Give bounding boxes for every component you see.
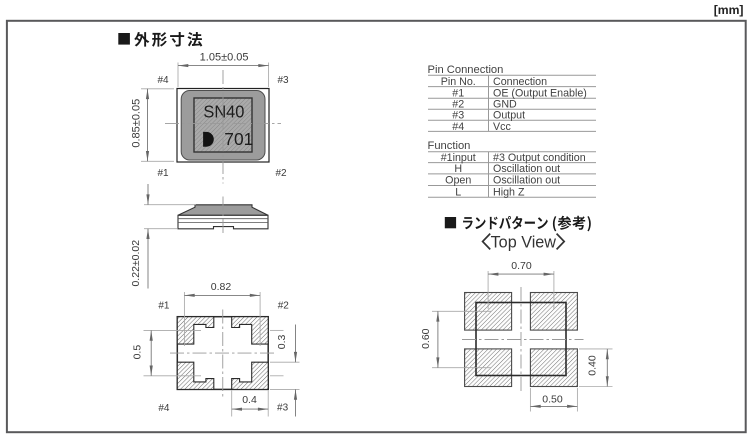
svg-text:H: H bbox=[454, 163, 462, 175]
svg-text:#1: #1 bbox=[452, 87, 464, 99]
svg-text:#2: #2 bbox=[278, 301, 290, 312]
svg-text:#1: #1 bbox=[157, 168, 169, 179]
svg-text:#2: #2 bbox=[275, 168, 287, 179]
svg-text:0.3: 0.3 bbox=[276, 334, 288, 349]
svg-text:Connection: Connection bbox=[493, 76, 547, 88]
svg-text:0.85±0.05: 0.85±0.05 bbox=[130, 99, 142, 148]
svg-text:#3: #3 bbox=[277, 403, 289, 414]
svg-text:#4: #4 bbox=[452, 121, 464, 133]
svg-text:Oscillation out: Oscillation out bbox=[493, 163, 560, 175]
svg-text:[mm]: [mm] bbox=[714, 3, 744, 17]
svg-text:Vcc: Vcc bbox=[493, 121, 511, 133]
svg-text:0.50: 0.50 bbox=[542, 393, 563, 405]
svg-text:0.4: 0.4 bbox=[242, 394, 257, 406]
svg-text:#4: #4 bbox=[158, 403, 170, 414]
svg-text:Pin No.: Pin No. bbox=[441, 76, 476, 88]
svg-text:0.40: 0.40 bbox=[587, 355, 599, 376]
svg-text:L: L bbox=[455, 186, 461, 198]
svg-text:0.60: 0.60 bbox=[420, 328, 432, 349]
svg-text:Open: Open bbox=[445, 175, 471, 187]
svg-text:Top View: Top View bbox=[491, 234, 557, 252]
svg-text:0.70: 0.70 bbox=[511, 260, 532, 272]
svg-text:0.5: 0.5 bbox=[131, 345, 143, 360]
svg-text:701: 701 bbox=[224, 129, 253, 149]
svg-text:Oscillation out: Oscillation out bbox=[493, 175, 560, 187]
svg-text:Function: Function bbox=[428, 140, 471, 152]
svg-text:#1: #1 bbox=[158, 301, 170, 312]
svg-text:Pin Connection: Pin Connection bbox=[428, 64, 504, 76]
svg-text:#4: #4 bbox=[157, 75, 169, 86]
svg-text:OE (Output Enable): OE (Output Enable) bbox=[493, 87, 587, 99]
svg-text:SN40: SN40 bbox=[203, 102, 244, 122]
svg-text:0.82: 0.82 bbox=[211, 281, 232, 293]
svg-text:High Z: High Z bbox=[493, 186, 525, 198]
svg-text:1.05±0.05: 1.05±0.05 bbox=[200, 51, 249, 63]
svg-text:0.22±0.02: 0.22±0.02 bbox=[130, 240, 142, 287]
svg-text:#3: #3 bbox=[277, 75, 289, 86]
